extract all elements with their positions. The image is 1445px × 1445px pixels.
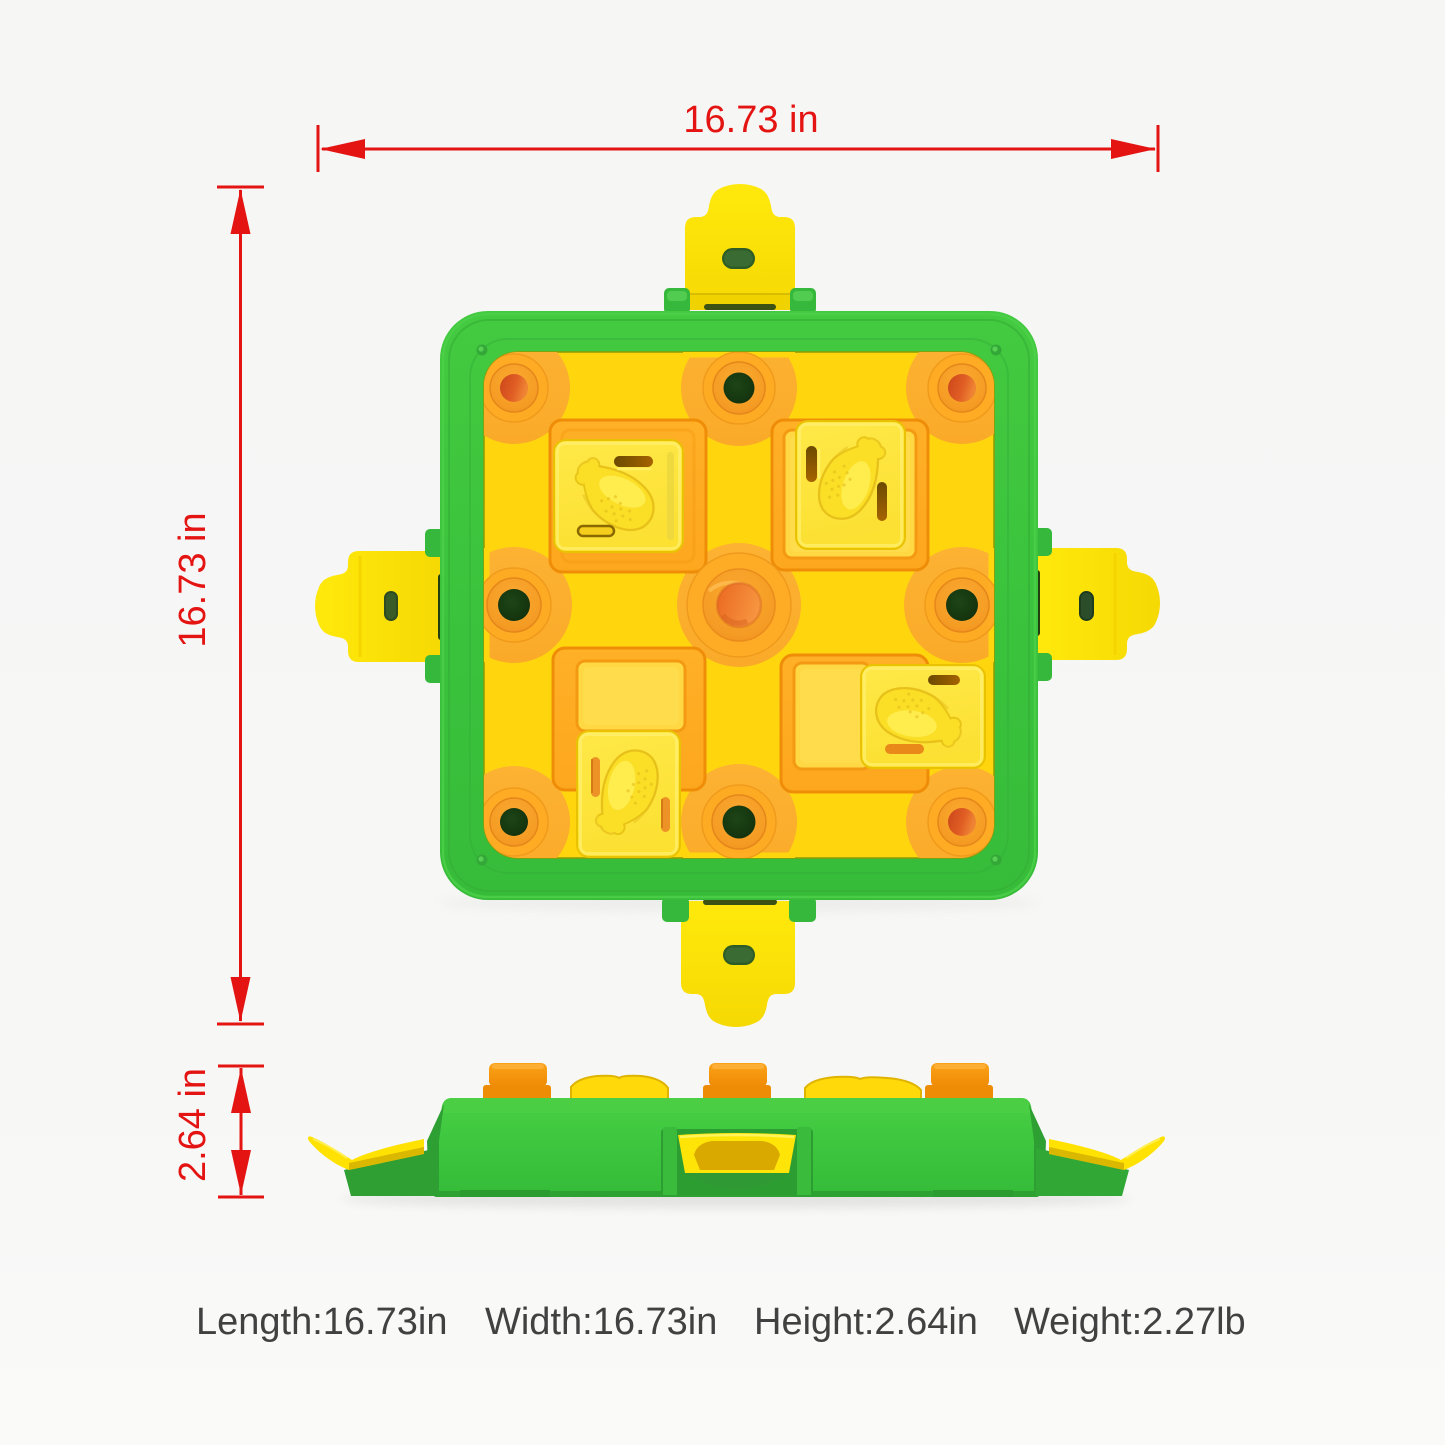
svg-text:Weight:2.27lb: Weight:2.27lb <box>1014 1301 1246 1343</box>
svg-text:Height:2.64in: Height:2.64in <box>754 1301 978 1343</box>
svg-text:16.73 in: 16.73 in <box>683 99 818 141</box>
svg-text:Length:16.73in: Length:16.73in <box>196 1301 447 1343</box>
svg-text:2.64 in: 2.64 in <box>172 1068 214 1182</box>
svg-text:Width:16.73in: Width:16.73in <box>485 1301 717 1343</box>
svg-text:16.73 in: 16.73 in <box>172 512 214 647</box>
